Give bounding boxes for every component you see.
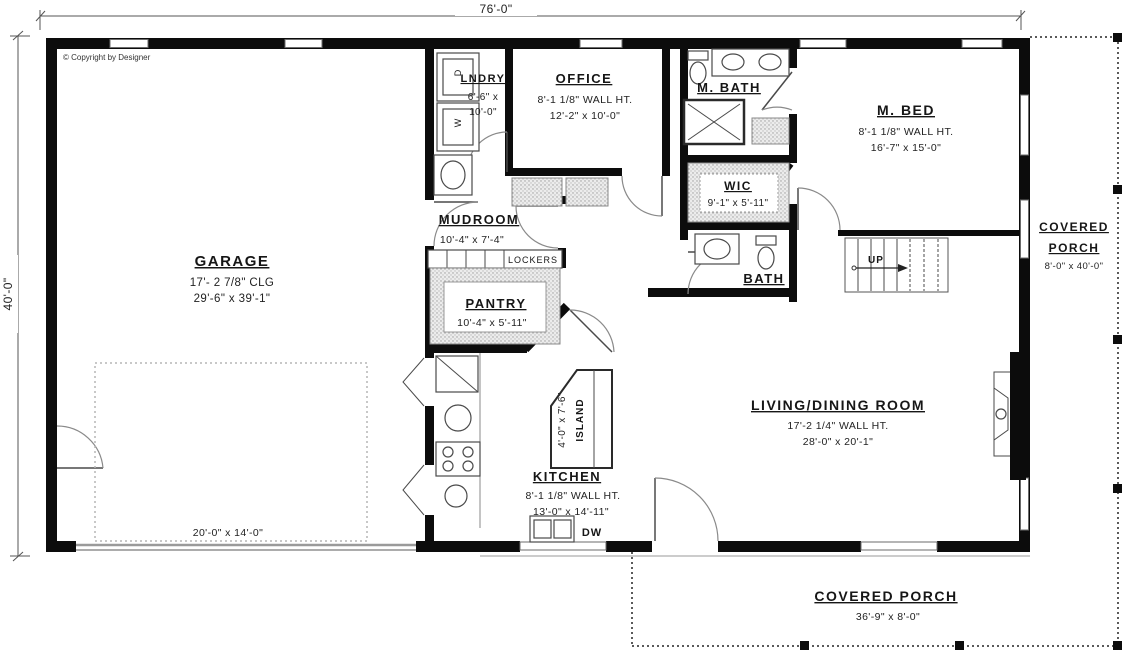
porch-right-size: 8'-0" x 40'-0" [1045,261,1104,272]
master-bed-wall-height: 8'-1 1/8" WALL HT. [858,126,953,138]
wic-title: WIC [724,179,752,193]
pantry-area: PANTRY 10'-4" x 5'-11" [430,268,560,344]
garage-title: GARAGE [195,253,270,270]
garage-size: 29'-6" x 39'-1" [194,293,271,305]
pantry-size: 10'-4" x 5'-11" [457,317,527,329]
master-bed-title: M. BED [877,102,935,118]
lndry-title: LNDRY [461,73,506,85]
porch-posts [800,33,1122,650]
bath-title: BATH [743,271,784,286]
master-bed-size: 16'-7" x 15'-0" [871,142,942,154]
living-size: 28'-0" x 20'-1" [803,436,874,448]
office-size: 12'-2" x 10'-0" [550,110,621,122]
garage-ceiling-height: 17'- 2 7/8" CLG [190,277,275,289]
porch-right-title-2: PORCH [1049,241,1100,255]
lndry-size-2: 10'-0" [469,107,497,118]
bath-area: BATH [695,234,785,286]
lockers: LOCKERS [428,250,562,268]
laundry-area: D W LNDRY 6'-6" x 10'-0" [434,53,505,195]
covered-porch-right: COVERED PORCH 8'-0" x 40'-0" [1039,220,1109,272]
kitchen-size: 13'-0" x 14'-11" [533,506,609,518]
living-title: LIVING/DINING ROOM [751,397,925,413]
living-dining-area: LIVING/DINING ROOM 17'-2 1/4" WALL HT. 2… [751,352,1026,480]
garage-area: GARAGE 17'- 2 7/8" CLG 29'-6" x 39'-1" 2… [95,253,367,541]
stairs: UP [845,238,948,292]
porch-bottom-size: 36'-9" x 8'-0" [856,611,920,623]
office-area: OFFICE 8'-1 1/8" WALL HT. 12'-2" x 10'-0… [512,71,633,206]
covered-porch-bottom: COVERED PORCH 36'-9" x 8'-0" [814,588,957,623]
master-bed-area: M. BED 8'-1 1/8" WALL HT. 16'-7" x 15'-0… [858,102,953,154]
kitchen-title: KITCHEN [533,469,601,484]
mudroom-area: MUDROOM 10'-4" x 7'-4" LOCKERS [428,212,562,268]
office-wall-height: 8'-1 1/8" WALL HT. [537,94,632,106]
office-title: OFFICE [556,71,613,86]
garage-door-size: 20'-0" x 14'-0" [193,527,264,539]
living-wall-height: 17'-2 1/4" WALL HT. [787,420,888,432]
mudroom-title: MUDROOM [439,212,520,227]
overall-width-dim: 76'-0" [480,2,513,16]
porch-right-title-1: COVERED [1039,220,1109,234]
lockers-label: LOCKERS [508,255,558,265]
floor-plan-canvas: 76'-0" 40'-0" [0,0,1131,664]
wic-area: WIC 9'-1" x 5'-11" [688,163,789,222]
floor-plan: 76'-0" 40'-0" [0,0,1131,664]
wic-size: 9'-1" x 5'-11" [708,198,769,209]
overall-height-dim: 40'-0" [1,278,15,311]
copyright-note: © Copyright by Designer [63,53,151,62]
lndry-size-1: 6'-6" x [468,92,499,103]
master-bath-title: M. BATH [697,80,761,95]
mudroom-size: 10'-4" x 7'-4" [440,234,504,246]
island-label: ISLAND [575,398,586,441]
island-size: 4'-0" x 7'-6" [557,392,568,448]
porch-bottom-title: COVERED PORCH [814,588,957,604]
washer-label: W [453,118,463,127]
kitchen-wall-height: 8'-1 1/8" WALL HT. [525,490,620,502]
kitchen-area: 4'-0" x 7'-6" ISLAND DW KITCHEN 8'-1 1/8… [436,353,621,542]
stairs-up-label: UP [868,255,884,266]
dishwasher-label: DW [582,527,602,539]
pantry-title: PANTRY [466,296,527,311]
